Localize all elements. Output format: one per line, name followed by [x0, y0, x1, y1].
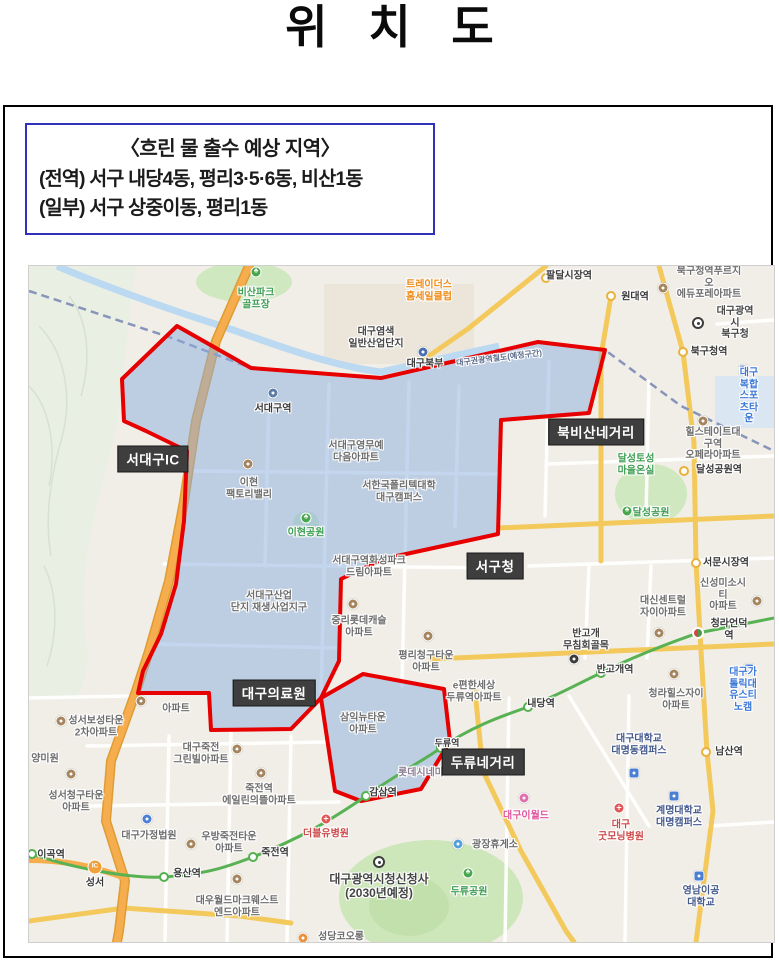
map-label: 힐스테이트대구역 오페라아파트 [683, 427, 744, 462]
map-label: 광장휴게소 [472, 839, 518, 851]
map-label: 계명대학교 대명캠퍼스 [656, 806, 702, 829]
poi-icon [232, 874, 243, 885]
poi-icon [348, 599, 359, 610]
poi-icon [186, 839, 197, 850]
sq-icon [694, 871, 705, 882]
map-label: 북구청역푸르지오 에듀포레아파트 [677, 266, 742, 301]
sq-icon [629, 768, 640, 779]
gov-icon [373, 856, 385, 868]
map-label: 죽전역 [261, 847, 289, 859]
map-label: 이현 팩토리밸리 [226, 478, 272, 501]
map-label: 대구광역시 북구청 [716, 306, 755, 341]
map-label: 양미원 [31, 753, 59, 765]
st-y-icon [678, 347, 688, 357]
poi-icon [256, 768, 267, 779]
tree-icon: ♣ [301, 513, 312, 524]
map-label: e편한세상 두류역아파트 [446, 681, 501, 704]
st-y-icon [679, 466, 689, 476]
poi-icon [654, 628, 665, 639]
map-label: 달성공원역 [696, 464, 742, 476]
tree-icon: ♣ [622, 506, 633, 517]
map-label: 대구대학교 대명동캠퍼스 [611, 734, 666, 757]
poi-icon [423, 631, 434, 642]
map-label: 대구북부 [407, 358, 444, 370]
map-label: 평리청구타운 아파트 [398, 651, 453, 674]
map-label: 죽전역 에일린의뜰아파트 [222, 784, 296, 807]
cross-icon: + [614, 803, 625, 814]
map-label: 대구복합 스포츠타운 [737, 367, 762, 425]
map-label: 삼익뉴타운 아파트 [340, 713, 386, 736]
map-label: 원대역 [621, 291, 649, 303]
st-y-icon [606, 291, 616, 301]
map: ♣♣+♣IC♣+비산파크 골프장대구염색 일반산업단지서대구역서대구영무예 다음… [28, 265, 775, 943]
map-label: 대구가정법원 [121, 830, 176, 842]
map-label: 대구죽전 그린빌아파트 [173, 743, 228, 766]
poi-icon [243, 459, 254, 470]
st-g-icon [28, 849, 37, 859]
map-label: 대구염색 일반산업단지 [348, 327, 403, 350]
poi-icon [658, 283, 669, 294]
poi-icon [752, 596, 763, 607]
poi-icon [136, 696, 147, 707]
map-label: 두류공원 [451, 886, 488, 898]
map-label: 이곡역 [37, 849, 65, 861]
map-label: 팔달시장역 [546, 270, 592, 282]
map-label: 비산파크 골프장 [238, 288, 275, 311]
map-label: 내당역 [527, 698, 555, 710]
map-label: 성서보성타운 2차아파트 [68, 716, 123, 739]
info-box: 〈흐린 물 출수 예상 지역〉 (전역) 서구 내당4동, 평리3·5·6동, … [25, 123, 435, 235]
poi-icon [418, 347, 429, 358]
poi-icon [453, 839, 464, 850]
poi-icon [298, 933, 309, 944]
poi-icon [669, 669, 680, 680]
tree-icon: ♣ [251, 267, 262, 278]
map-label: 서문시장역 [703, 557, 749, 569]
map-label: 서대구산업 단지 재생사업지구 [231, 591, 307, 614]
map-label: 남산역 [715, 746, 743, 758]
st-y-icon [691, 558, 701, 568]
map-label: 신성미소시티 아파트 [698, 578, 749, 613]
poi-icon [569, 654, 580, 665]
map-label: 영남이공 대학교 [683, 886, 720, 909]
map-badge: 대구의료원 [233, 680, 316, 707]
map-label: 성당코오롱 [318, 931, 364, 943]
cross-icon: + [321, 814, 332, 825]
poi-icon [698, 416, 709, 427]
poi-icon [56, 716, 67, 727]
map-label: 달성토성 마을온실 [618, 454, 655, 477]
poi-icon [519, 793, 530, 804]
map-badge: 서구청 [467, 553, 524, 580]
map-badge: 북비산네거리 [548, 419, 644, 446]
map-label: 대구 굿모닝병원 [598, 820, 644, 843]
map-label: 서대구역 [255, 403, 292, 415]
map-label: 롯데시네마 [398, 767, 444, 779]
tree-icon: ♣ [463, 868, 474, 879]
map-badge: 두류네거리 [442, 749, 525, 776]
st-y-icon [701, 747, 711, 757]
map-label: 더블유병원 [303, 828, 349, 840]
map-label: 서한국폴리텍대학 대구캠퍼스 [362, 481, 436, 504]
map-label: 반고개역 [597, 664, 634, 676]
poi-icon [268, 388, 279, 399]
info-box-heading: 〈흐린 물 출수 예상 지역〉 [39, 132, 421, 161]
poi-icon [232, 744, 243, 755]
map-label: 서대구영무예 다음아파트 [328, 441, 383, 464]
map-label: 성서청구타운 아파트 [48, 791, 103, 814]
map-label: 우방죽전타운 아파트 [201, 832, 256, 855]
map-label: 감삼역 [369, 787, 397, 799]
info-box-line-partial: (일부) 서구 상중이동, 평리1동 [39, 194, 421, 223]
map-label: 대구광역시청신청사 (2030년예정) [329, 873, 428, 901]
st-g-icon [159, 872, 169, 882]
map-label: 대구권광역철도(예정구간) [456, 348, 543, 368]
map-label: 두류역 [435, 738, 460, 748]
map-label: 대신센트럴 자이아파트 [640, 596, 686, 619]
map-label: 북구청역 [691, 346, 728, 358]
map-label: 대우월드마크웨스트 엔드아파트 [196, 896, 279, 919]
map-label: 달성공원 [633, 507, 670, 519]
sq-icon [669, 791, 680, 802]
map-label: 중리롯데캐슬 아파트 [331, 616, 386, 639]
map-label: 청라힐스자이 아파트 [648, 689, 703, 712]
map-label-layer: ♣♣+♣IC♣+비산파크 골프장대구염색 일반산업단지서대구역서대구영무예 다음… [29, 266, 774, 942]
page: { "page": { "title": "위 치 도" }, "info_bo… [0, 0, 779, 963]
map-badge: 서대구IC [117, 446, 188, 473]
ic-icon: IC [88, 860, 103, 875]
map-label: 반고개 무침회골목 [563, 629, 609, 652]
map-label: 아파트 [162, 703, 190, 715]
poi-icon [142, 814, 153, 825]
map-label: 용산역 [173, 868, 201, 880]
map-label: 대구가톨릭대 유스티노캠 [728, 667, 759, 713]
map-label: 이현공원 [288, 527, 325, 539]
map-label: 트레이더스 홈세일클럽 [406, 280, 452, 303]
map-label: 서대구역화성파크 드림아파트 [332, 556, 406, 579]
map-label: 대구이월드 [503, 810, 549, 822]
map-label: 청라언덕역 [707, 619, 752, 642]
info-box-line-full: (전역) 서구 내당4동, 평리3·5·6동, 비산1동 [39, 165, 421, 194]
page-title: 위 치 도 [0, 0, 779, 57]
gov-icon [692, 317, 704, 329]
poi-icon [66, 769, 77, 780]
map-label: 성서 [86, 877, 104, 889]
st-t-icon [692, 627, 704, 639]
